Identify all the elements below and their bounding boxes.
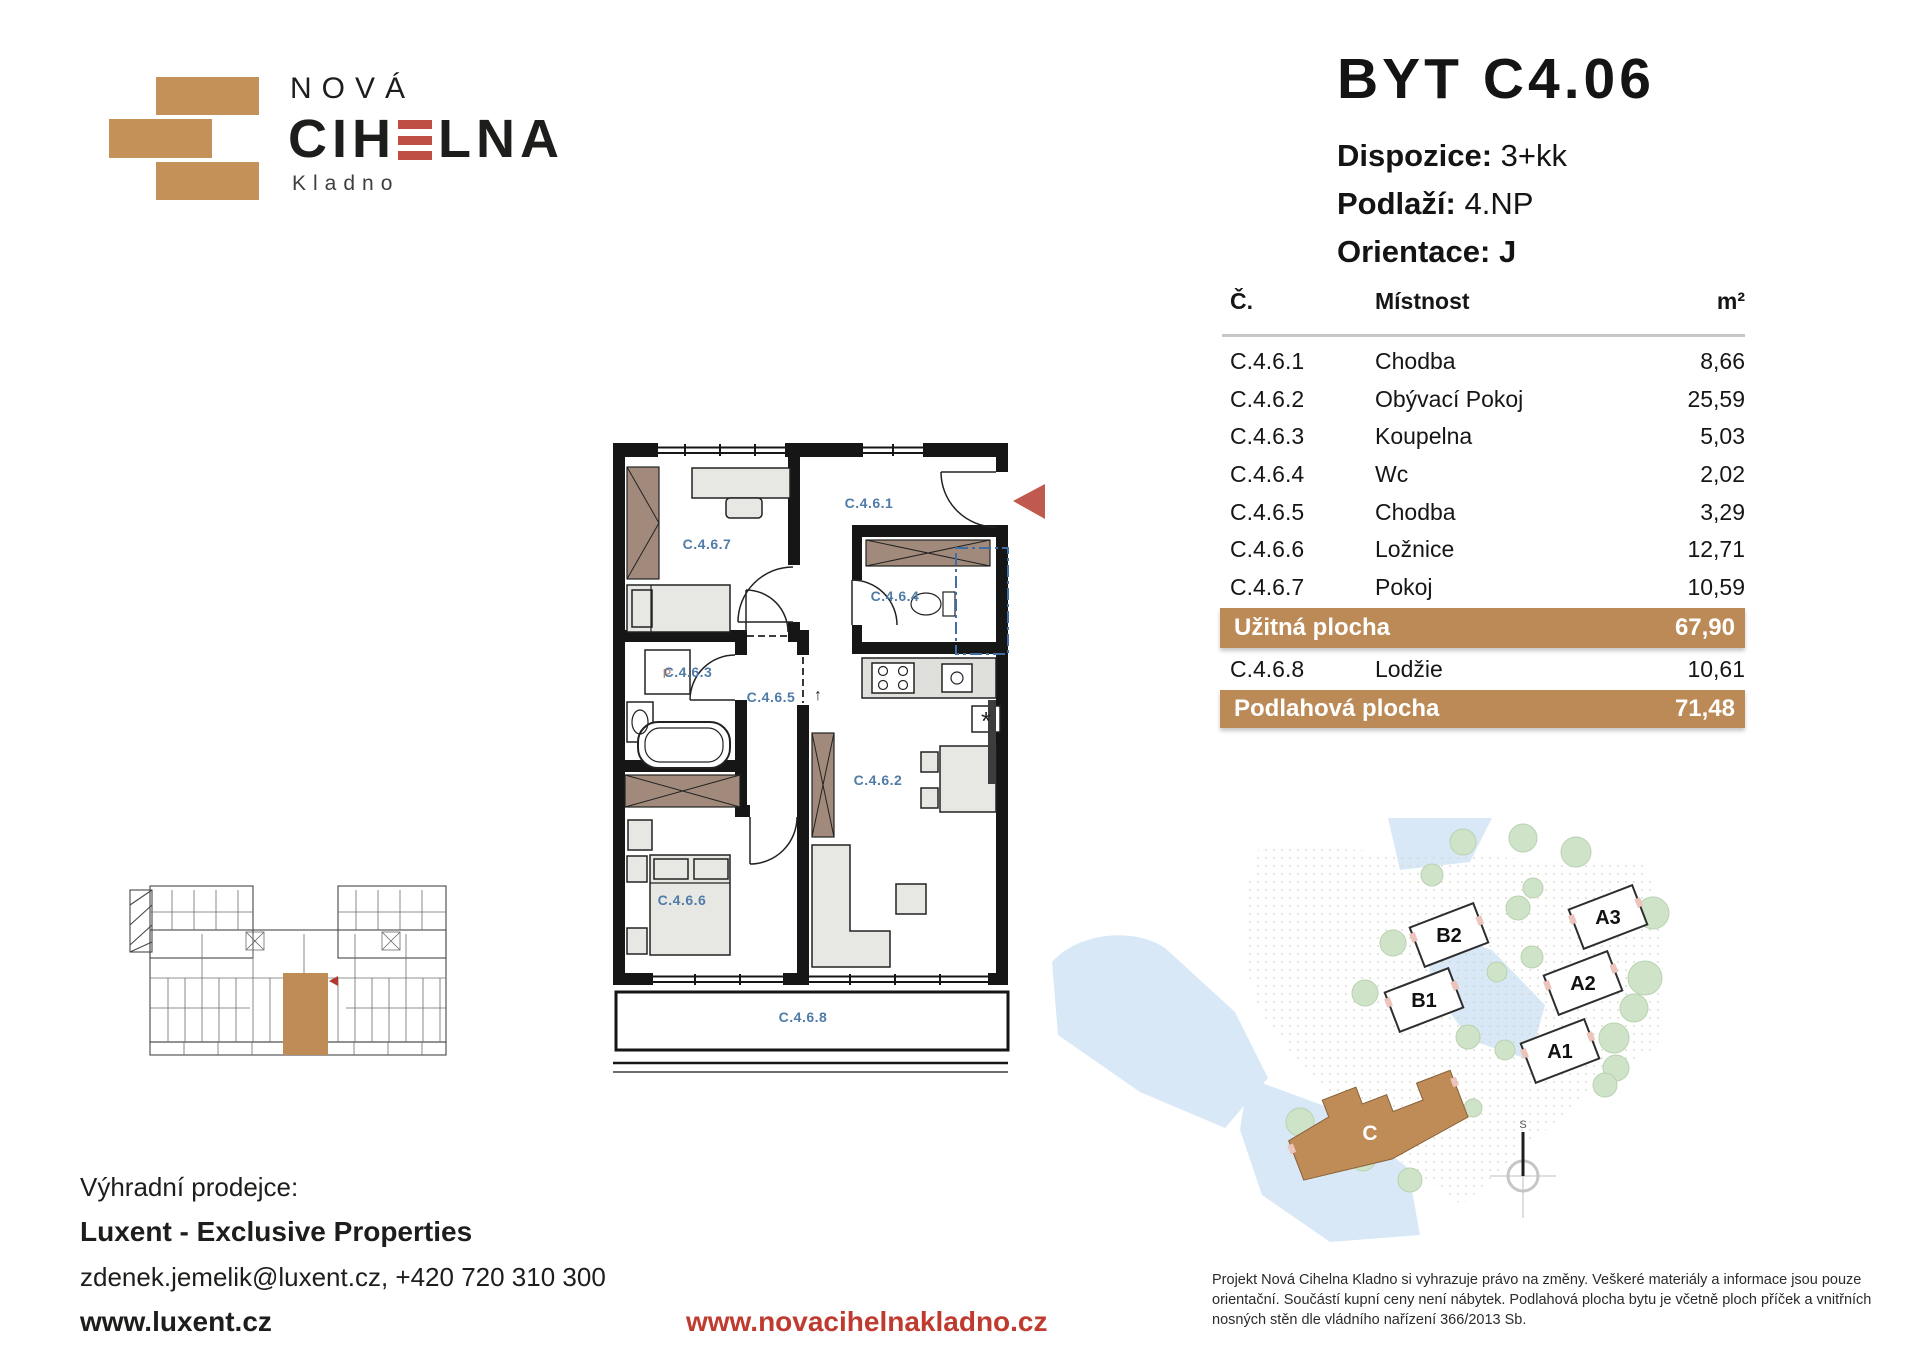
room-label: C.4.6.4 [871,588,920,604]
brand-name-post: LNA [438,108,564,170]
seller-name: Luxent - Exclusive Properties [80,1216,472,1248]
building-label: B2 [1436,925,1462,947]
logo-brick-icon [109,119,212,158]
building-label: C [1362,1122,1377,1145]
spec-value: 4.NP [1464,186,1533,221]
col-number: Č. [1222,288,1375,315]
room-label: C.4.6.7 [683,536,732,552]
spec-podlazi: Podlaží: 4.NP [1337,186,1533,222]
loggia-outline [613,992,1008,1072]
table-row: C.4.6.1Chodba8,66 [1222,343,1745,381]
direction-arrow: ↑ [814,687,822,704]
spec-value: J [1499,234,1516,269]
table-row: C.4.6.5Chodba3,29 [1222,493,1745,531]
logo-brick-icon [156,162,259,200]
table-separator [1222,334,1745,337]
spec-label: Podlaží: [1337,186,1456,221]
room-label: C.4.6.2 [854,772,903,788]
highlighted-unit [283,973,328,1055]
table-row: C.4.6.6Ložnice12,71 [1222,531,1745,569]
col-area: m² [1625,288,1745,315]
unit-title: BYT C4.06 [1337,46,1655,112]
table-row: C.4.6.3Koupelna5,03 [1222,418,1745,456]
brand-name-pre: CIH [288,108,396,170]
table-row: C.4.6.4Wc2,02 [1222,456,1745,494]
logo-brick-icon [156,77,259,115]
entrance-arrow-icon [1013,484,1045,519]
brand-city: Kladno [292,172,399,196]
useful-area-bar: Užitná plocha 67,90 [1220,608,1745,648]
spec-orientace: Orientace: J [1337,234,1516,270]
project-website-link[interactable]: www.novacihelnakladno.cz [686,1306,1048,1338]
building-label: A3 [1595,907,1621,929]
logo-e-bars-icon [398,120,432,160]
building-label: B1 [1411,990,1437,1012]
seller-label: Výhradní prodejce: [80,1172,298,1203]
spec-dispozice: Dispozice: 3+kk [1337,138,1567,174]
col-room: Místnost [1375,288,1625,315]
spec-label: Orientace: [1337,234,1490,269]
loggia-row: C.4.6.8Lodžie10,61 [1222,648,1745,690]
table-row: C.4.6.7Pokoj10,59 [1222,569,1745,607]
room-table-header: Č. Místnost m² [1222,288,1745,315]
spec-label: Dispozice: [1337,138,1492,173]
disclaimer-text: Projekt Nová Cihelna Kladno si vyhrazuje… [1212,1270,1872,1330]
vent-symbol: * [981,706,991,736]
floor-plan: C.4.6.1 C.4.6.7 C.4.6.4 C.4.6.3 C.4.6.5 … [598,428,1082,1092]
seller-website-link[interactable]: www.luxent.cz [80,1306,272,1338]
building-label: A2 [1570,973,1596,995]
apartment-card-sheet: NOVÁ CIH LNA Kladno BYT C4.06 Dispozice:… [0,0,1920,1353]
seller-contact[interactable]: zdenek.jemelik@luxent.cz, +420 720 310 3… [80,1262,606,1293]
room-label: C.4.6.1 [845,495,894,511]
compass-north-label: S [1519,1119,1526,1131]
brand-name-top: NOVÁ [290,72,415,106]
room-label: C.4.6.5 [747,689,796,705]
mini-entrance-arrow-icon [329,976,338,986]
floor-area-bar: Podlahová plocha 71,48 [1220,690,1745,728]
site-plan: B2 B1 A3 A2 A1 C S [1030,812,1690,1257]
brand-name-main: CIH LNA [288,108,564,170]
spec-value: 3+kk [1501,138,1567,173]
room-label: C.4.6.8 [779,1009,828,1025]
floor-overview [118,872,462,1068]
building-label: A1 [1547,1041,1573,1063]
washer-symbol: P [663,666,672,681]
room-label: C.4.6.6 [658,892,707,908]
table-row: C.4.6.2Obývací Pokoj25,59 [1222,381,1745,419]
room-table-rows: C.4.6.1Chodba8,66 C.4.6.2Obývací Pokoj25… [1222,343,1745,606]
